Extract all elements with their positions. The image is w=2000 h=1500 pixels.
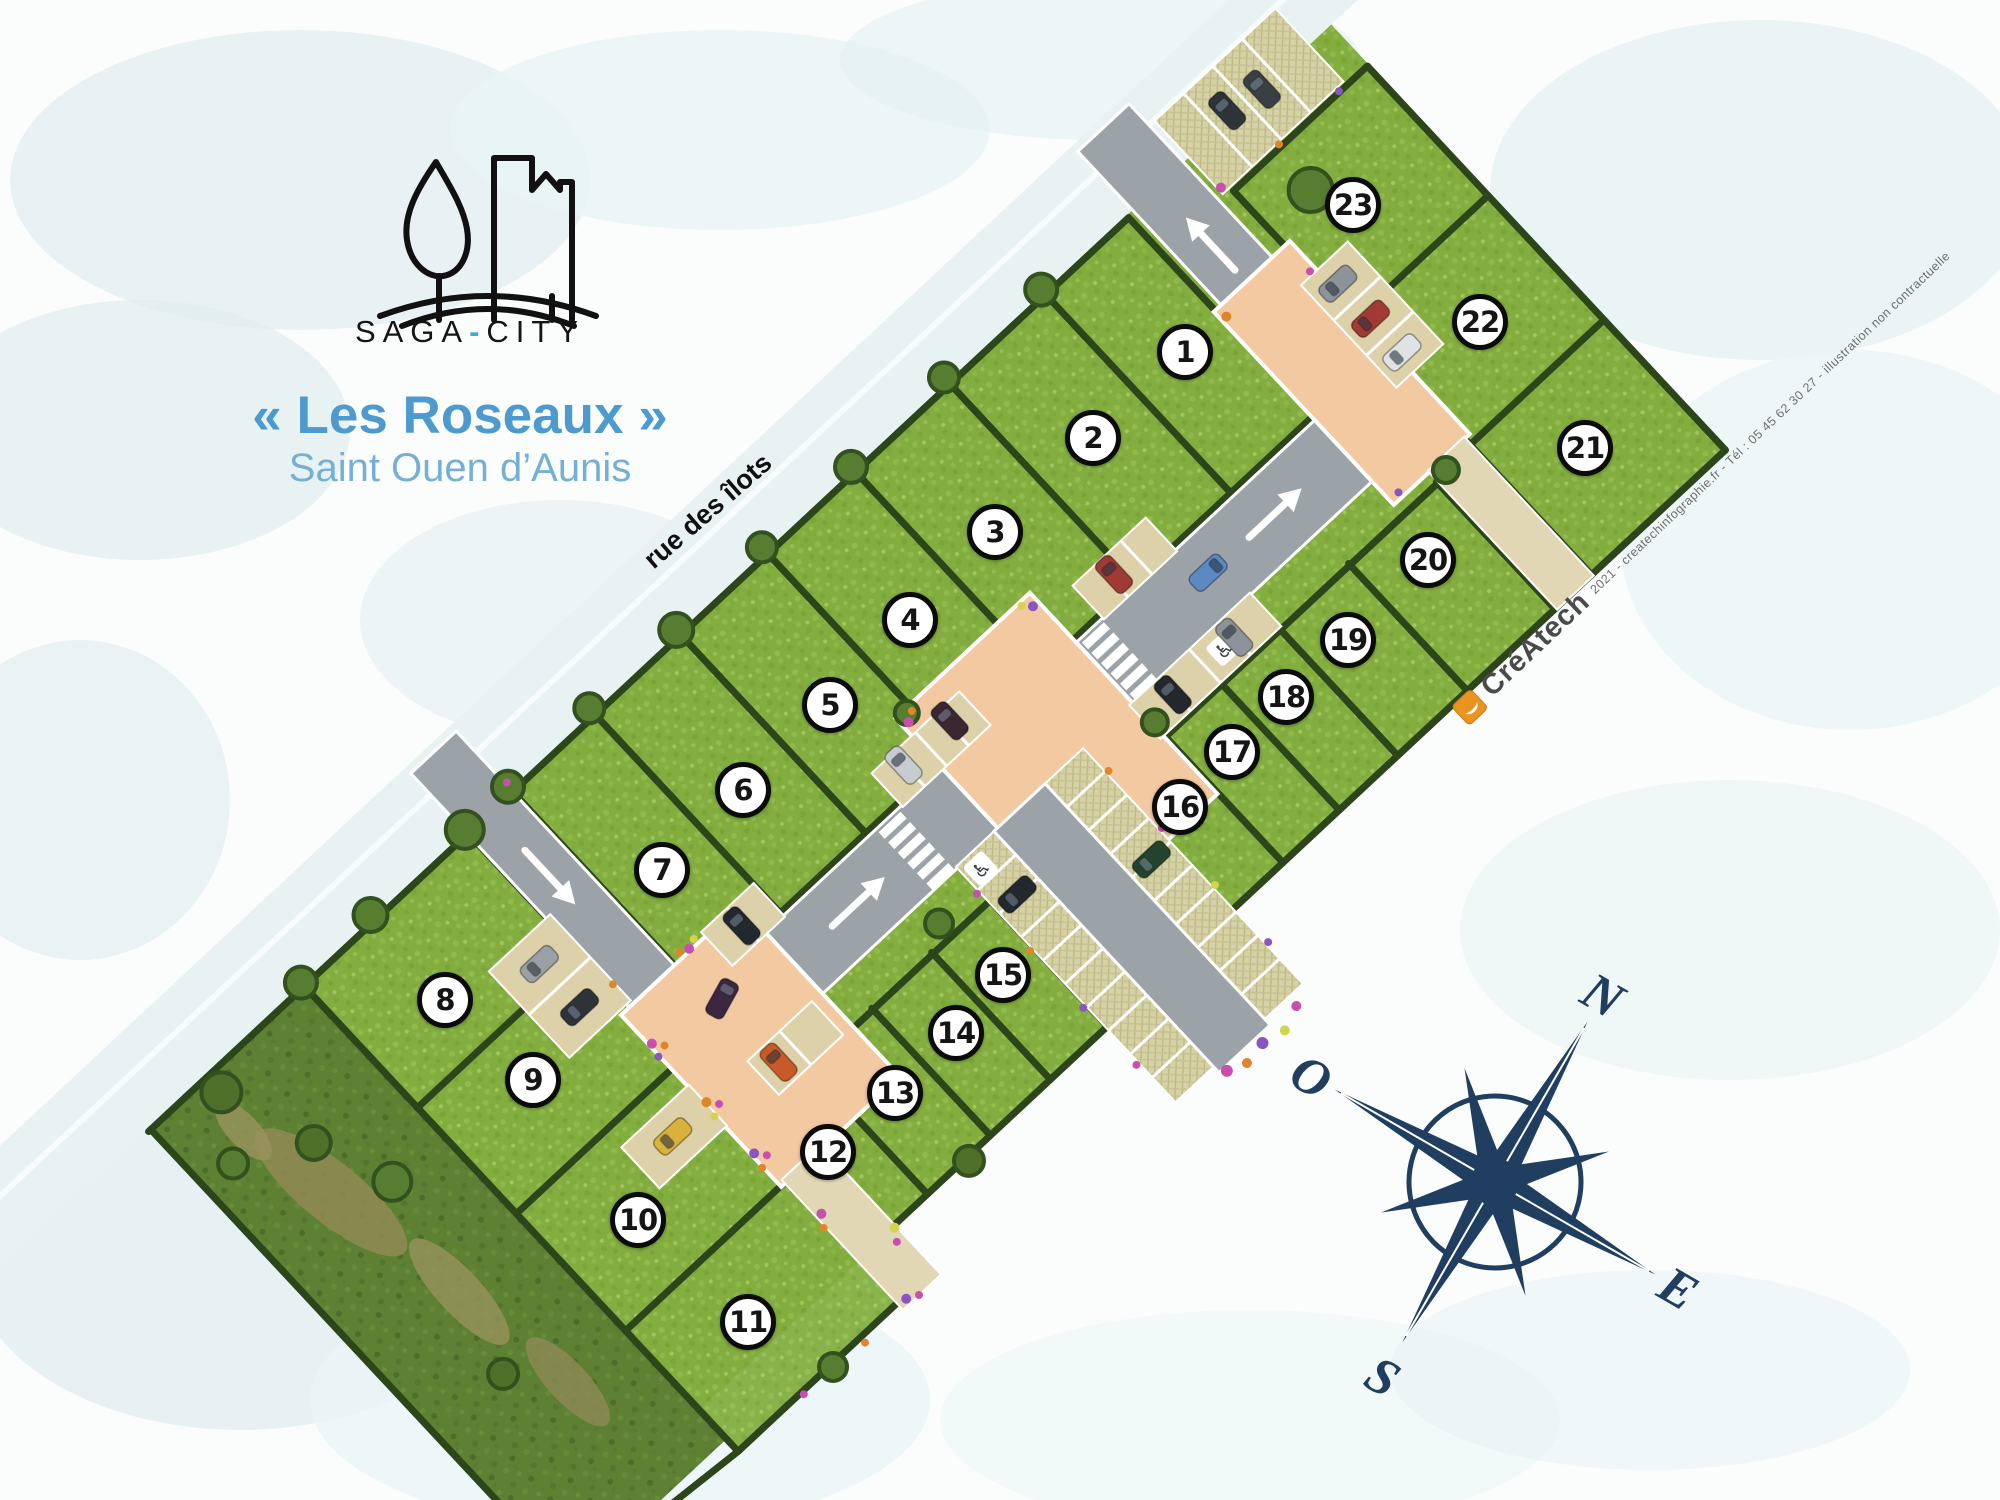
- lot-badge: 21: [1557, 420, 1613, 476]
- lot-badge: 7: [634, 842, 690, 898]
- lot-badges: 1234567891011121314151617181920212223: [0, 0, 2000, 1500]
- lot-badge: 3: [967, 504, 1023, 560]
- lot-badge: 17: [1204, 724, 1260, 780]
- lot-badge: 9: [505, 1052, 561, 1108]
- lot-badge: 19: [1320, 612, 1376, 668]
- lot-badge: 11: [720, 1294, 776, 1350]
- lot-badge: 6: [715, 762, 771, 818]
- lot-badge: 10: [610, 1192, 666, 1248]
- lot-badge: 2: [1065, 410, 1121, 466]
- lot-badge: 5: [802, 677, 858, 733]
- lot-badge: 14: [928, 1005, 984, 1061]
- site-plan-page: ♿ ♿: [0, 0, 2000, 1500]
- lot-badge: 4: [882, 592, 938, 648]
- lot-badge: 16: [1152, 779, 1208, 835]
- lot-badge: 18: [1258, 669, 1314, 725]
- lot-badge: 12: [800, 1124, 856, 1180]
- lot-badge: 8: [417, 972, 473, 1028]
- lot-badge: 1: [1157, 324, 1213, 380]
- lot-badge: 23: [1325, 177, 1381, 233]
- lot-badge: 15: [975, 947, 1031, 1003]
- lot-badge: 22: [1452, 294, 1508, 350]
- lot-badge: 20: [1400, 532, 1456, 588]
- lot-badge: 13: [867, 1065, 923, 1121]
